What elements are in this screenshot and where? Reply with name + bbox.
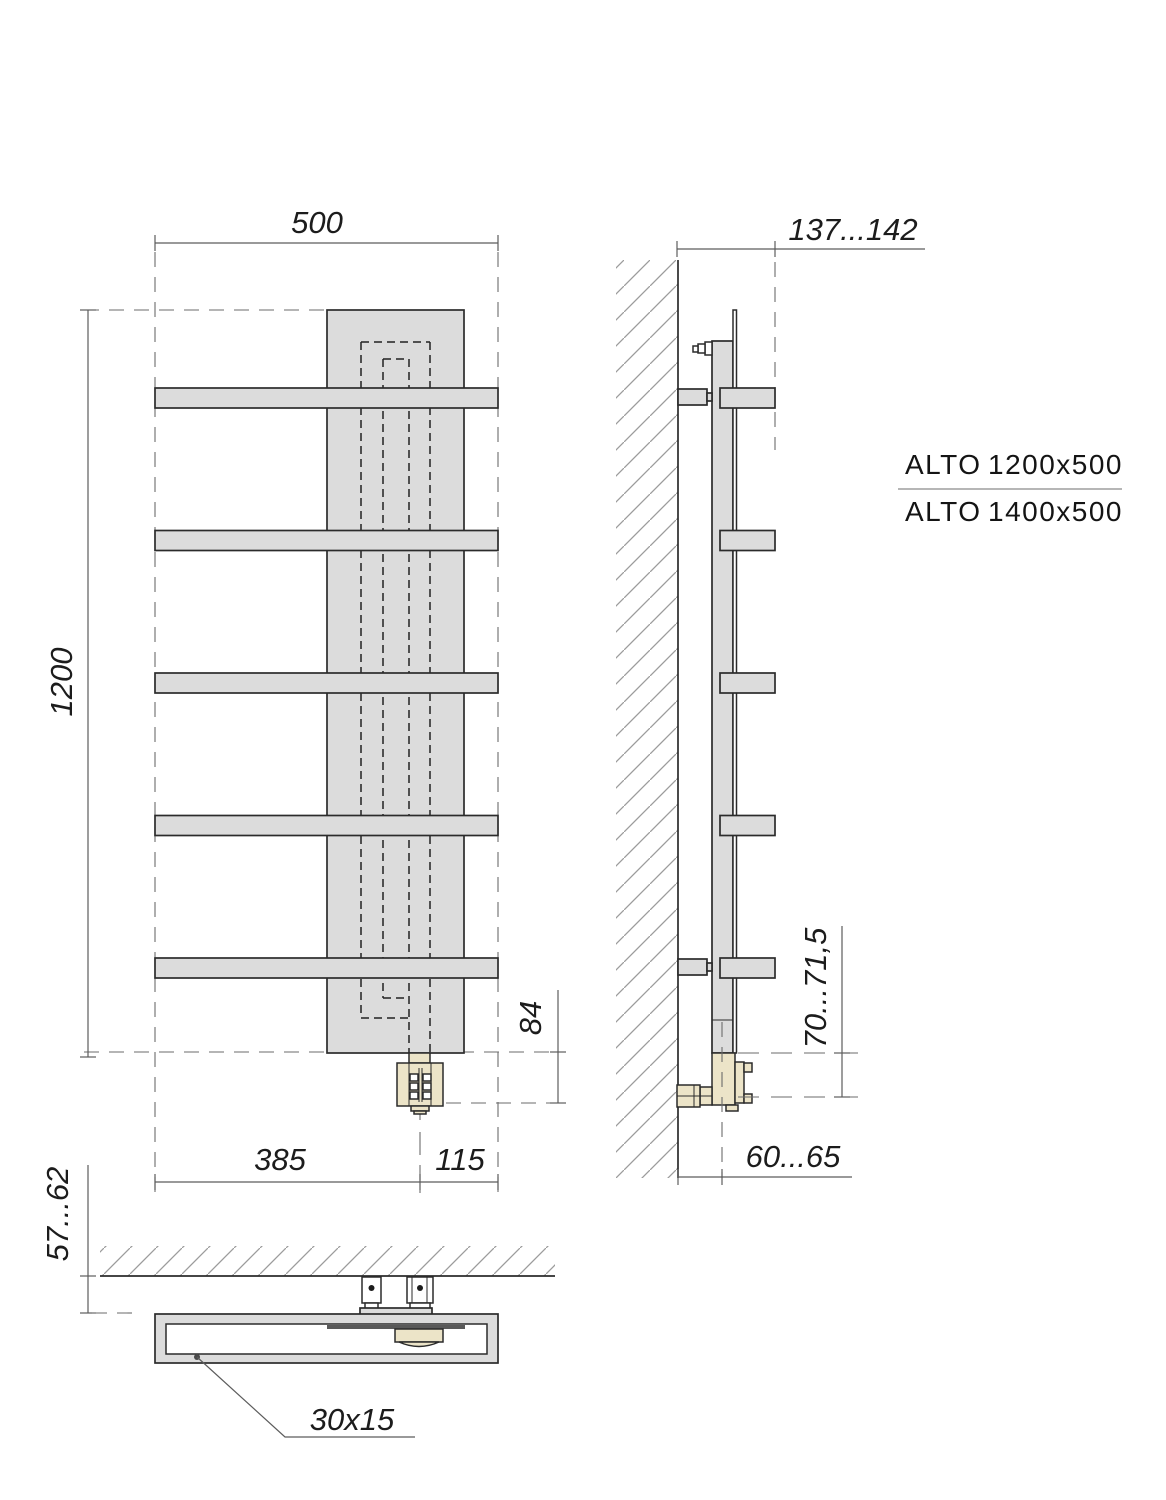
collector-column — [712, 341, 733, 1053]
valve-port — [423, 1074, 431, 1081]
dim-wall-clearance: 57...62 — [40, 1165, 96, 1313]
valve-port — [410, 1092, 418, 1099]
wall-bracket-top — [678, 389, 712, 405]
top-view: 57...62 30x15 — [40, 1165, 555, 1437]
valve-port — [423, 1092, 431, 1099]
front-view: 500 1200 — [44, 205, 566, 1196]
model-labels: ALTO 1200x500 ALTO 1400x500 — [898, 449, 1123, 527]
model-1-size: 1200x500 — [988, 449, 1123, 480]
towel-bar-section — [720, 673, 775, 693]
towel-bar-section — [720, 531, 775, 551]
towel-bar — [155, 958, 498, 978]
wall-bracket — [678, 959, 707, 975]
dim-front-height-label: 1200 — [44, 648, 79, 717]
wall-bracket-pin — [707, 963, 712, 971]
bracket-b — [407, 1277, 433, 1309]
dim-connection-drop: 84 — [513, 990, 566, 1103]
dim-wall-axis: 60...65 — [678, 1139, 852, 1185]
valve-stub — [409, 1053, 430, 1063]
dim-front-height: 1200 — [44, 310, 96, 1057]
model-2-size: 1400x500 — [988, 496, 1123, 527]
valve-nut-tip — [414, 1111, 426, 1114]
valve-top-view — [395, 1329, 443, 1347]
air-vent-valve — [693, 342, 712, 355]
dim-offset-left-label: 385 — [254, 1142, 306, 1177]
wall-hatch — [616, 260, 678, 1178]
valve-body-top — [395, 1329, 443, 1342]
wall-bracket-pin — [707, 393, 712, 401]
valve-tab — [744, 1094, 752, 1103]
air-vent-mid — [698, 344, 705, 353]
valve-tab — [744, 1063, 752, 1072]
wall-hatch-top-view — [100, 1246, 555, 1276]
radiator-drawing: 500 1200 — [0, 0, 1166, 1500]
dim-depth-label: 137...142 — [788, 212, 917, 247]
dim-connection-drop-label: 84 — [513, 1001, 548, 1035]
towel-bar — [155, 531, 498, 551]
dim-connection-height-label: 70...71,5 — [798, 927, 833, 1048]
dim-offset-right-label: 115 — [435, 1142, 485, 1177]
dim-wall-axis-label: 60...65 — [746, 1139, 842, 1174]
profile-label: 30x15 — [310, 1402, 395, 1437]
towel-bar-section — [720, 958, 775, 978]
valve-port — [410, 1074, 418, 1081]
bracket-screw — [417, 1285, 423, 1291]
bottom-valve-front — [397, 1053, 443, 1114]
bottom-valve-side — [677, 1053, 752, 1111]
bracket-screw — [369, 1285, 375, 1291]
wall-bracket-bottom — [678, 959, 712, 975]
towel-bar — [155, 673, 498, 693]
dim-bottom-offsets: 385 115 — [155, 1142, 498, 1190]
air-vent-base — [705, 342, 712, 355]
air-vent-tip — [693, 346, 698, 352]
side-view: 137...142 — [616, 212, 925, 1185]
dim-front-width: 500 — [155, 205, 498, 251]
model-1-name: ALTO — [905, 449, 982, 480]
profile-callout: 30x15 — [194, 1354, 415, 1437]
model-2-name: ALTO — [905, 496, 982, 527]
dim-front-width-label: 500 — [291, 205, 343, 240]
bracket-a — [362, 1277, 381, 1309]
towel-bar — [155, 388, 498, 408]
elbow-vertical-body — [712, 1053, 735, 1105]
valve-port — [410, 1083, 418, 1090]
towel-bar-section — [720, 388, 775, 408]
wall-bracket — [678, 389, 707, 405]
valve-nut — [726, 1105, 738, 1111]
towel-bar — [155, 816, 498, 836]
technical-drawing-sheet: 500 1200 — [0, 0, 1166, 1500]
valve-body — [397, 1063, 443, 1106]
dim-depth: 137...142 — [677, 212, 925, 257]
towel-bar-section — [720, 816, 775, 836]
dim-wall-clearance-label: 57...62 — [40, 1167, 75, 1262]
valve-port — [423, 1083, 431, 1090]
dim-connection-height: 70...71,5 — [798, 926, 850, 1097]
